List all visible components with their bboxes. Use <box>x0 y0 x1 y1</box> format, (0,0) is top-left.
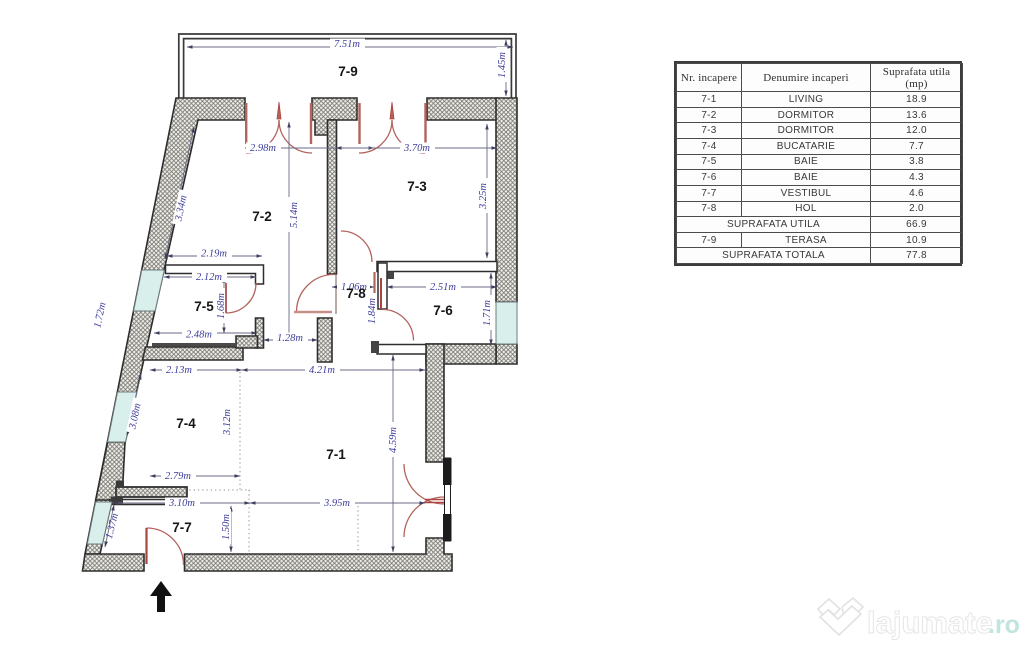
svg-text:2.51m: 2.51m <box>430 282 456 293</box>
svg-text:5.14m: 5.14m <box>289 202 300 228</box>
svg-text:7-3: 7-3 <box>407 179 427 194</box>
svg-text:1.68m: 1.68m <box>216 293 227 319</box>
svg-text:2.48m: 2.48m <box>186 330 212 341</box>
svg-text:1.50m: 1.50m <box>221 514 232 540</box>
svg-text:2.19m: 2.19m <box>201 249 227 260</box>
svg-text:1.71m: 1.71m <box>482 300 493 326</box>
svg-text:7-8: 7-8 <box>346 286 366 301</box>
svg-text:lajumate: lajumate <box>867 605 993 640</box>
svg-text:7-4: 7-4 <box>176 416 196 431</box>
svg-text:7-1: 7-1 <box>326 447 346 462</box>
svg-text:3.95m: 3.95m <box>323 498 350 509</box>
svg-text:4.21m: 4.21m <box>309 365 335 376</box>
svg-text:3.10m: 3.10m <box>168 498 195 509</box>
svg-text:3.70m: 3.70m <box>403 143 430 154</box>
svg-text:7-2: 7-2 <box>252 209 272 224</box>
svg-text:.ro: .ro <box>988 611 1020 639</box>
svg-text:7-5: 7-5 <box>194 299 214 314</box>
svg-text:3.25m: 3.25m <box>478 183 489 210</box>
svg-text:1.72m: 1.72m <box>92 301 108 329</box>
svg-text:7-9: 7-9 <box>338 64 358 79</box>
svg-text:2.98m: 2.98m <box>250 143 276 154</box>
svg-text:2.12m: 2.12m <box>196 272 222 283</box>
svg-text:7.51m: 7.51m <box>334 39 360 50</box>
svg-text:4.59m: 4.59m <box>388 427 399 453</box>
svg-text:7-7: 7-7 <box>172 520 192 535</box>
svg-text:1.45m: 1.45m <box>497 52 508 78</box>
svg-text:2.13m: 2.13m <box>166 365 192 376</box>
svg-text:1.84m: 1.84m <box>367 298 378 324</box>
svg-text:7-6: 7-6 <box>433 303 453 318</box>
svg-text:1.28m: 1.28m <box>277 333 303 344</box>
svg-text:3.12m: 3.12m <box>222 409 233 436</box>
svg-text:2.79m: 2.79m <box>165 471 191 482</box>
